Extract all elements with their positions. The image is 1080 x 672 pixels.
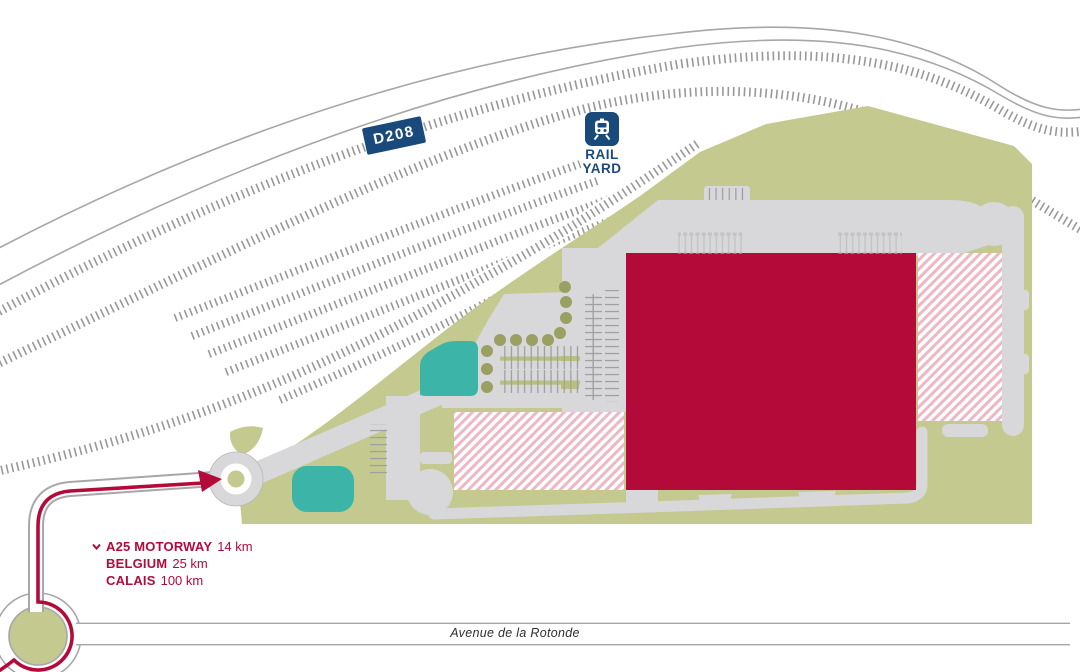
distance-value: 25 km bbox=[172, 555, 207, 572]
distance-item: A25 MOTORWAY 14 km bbox=[92, 538, 253, 555]
parking-row bbox=[500, 370, 580, 393]
loading-docks-east bbox=[838, 233, 902, 254]
chevron-down-icon bbox=[92, 543, 106, 550]
cul-de-sac bbox=[407, 469, 453, 515]
retention-pond bbox=[292, 466, 354, 512]
distance-value: 100 km bbox=[161, 572, 204, 589]
truck-yard bbox=[588, 200, 992, 258]
site-access-map: D208 RAIL YARD A25 MOTORWAY 14 km BELGIU… bbox=[0, 0, 1080, 672]
train-icon bbox=[590, 117, 614, 141]
parking-column bbox=[605, 290, 619, 402]
right-access-road bbox=[1002, 206, 1024, 436]
future-extension-right bbox=[918, 253, 1002, 421]
rail-yard-label: RAIL YARD bbox=[567, 148, 637, 176]
warehouse-building bbox=[626, 233, 916, 491]
landscape-wedge bbox=[230, 426, 263, 455]
avenue-label: Avenue de la Rotonde bbox=[400, 626, 630, 640]
parking-row bbox=[500, 346, 580, 369]
distance-label: A25 MOTORWAY bbox=[106, 538, 212, 555]
loading-docks-west bbox=[678, 233, 742, 254]
distance-item: BELGIUM 25 km bbox=[92, 555, 253, 572]
distance-item: CALAIS 100 km bbox=[92, 572, 253, 589]
parking-column bbox=[370, 424, 387, 474]
distance-value: 14 km bbox=[217, 538, 252, 555]
distance-list: A25 MOTORWAY 14 km BELGIUM 25 km CALAIS … bbox=[92, 538, 253, 589]
rail-yard-label-line2: YARD bbox=[567, 162, 637, 176]
distance-label: BELGIUM bbox=[106, 555, 167, 572]
distance-label: CALAIS bbox=[106, 572, 156, 589]
truck-parking-ticks bbox=[706, 188, 748, 200]
future-extension-left bbox=[454, 412, 624, 490]
rail-yard-icon bbox=[585, 112, 619, 146]
rail-yard-label-line1: RAIL bbox=[567, 148, 637, 162]
